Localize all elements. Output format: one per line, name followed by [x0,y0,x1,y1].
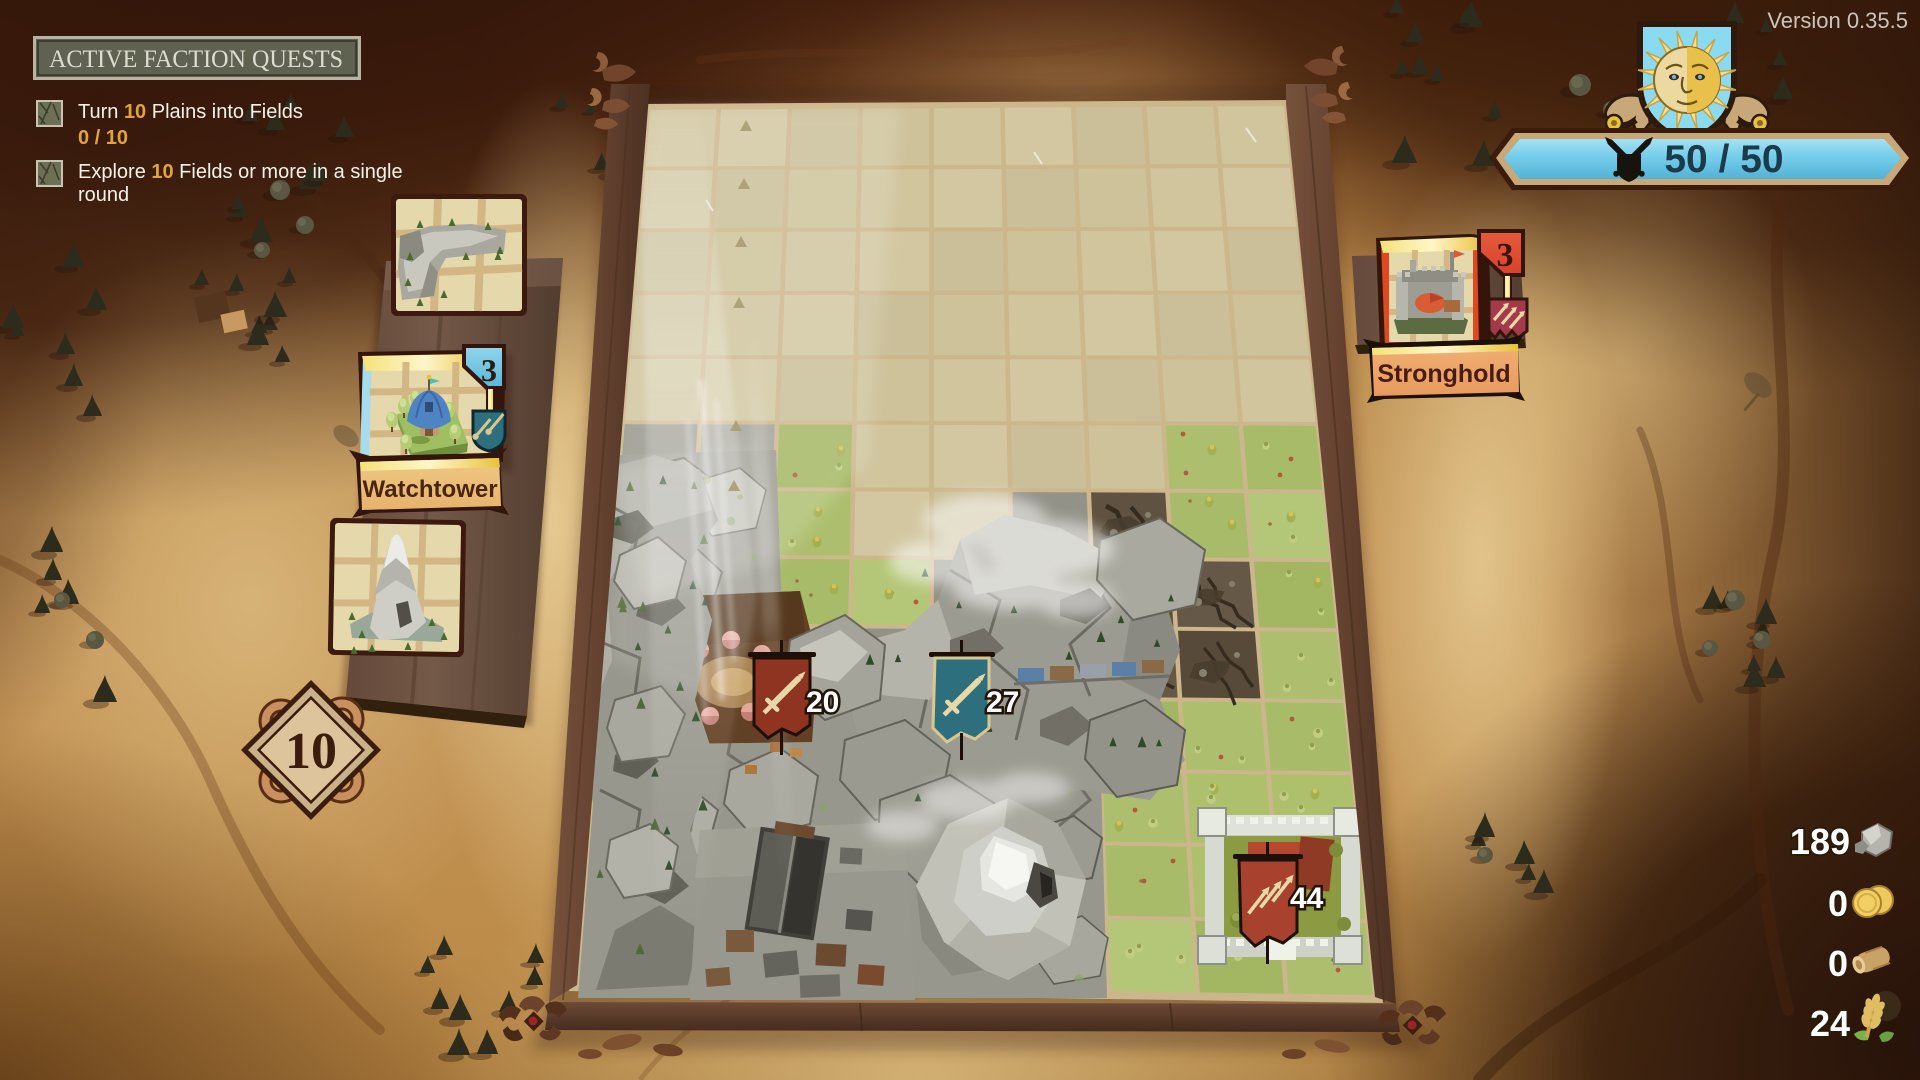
svg-text:0: 0 [1828,943,1848,984]
svg-text:20: 20 [806,686,839,719]
svg-text:0: 0 [1828,883,1848,924]
svg-text:Stronghold: Stronghold [1377,360,1510,388]
svg-text:round: round [78,184,129,206]
svg-text:3: 3 [1497,237,1514,274]
svg-text:10: 10 [285,723,337,780]
svg-text:44: 44 [1290,882,1324,915]
svg-text:Explore 10 Fields or more in a: Explore 10 Fields or more in a single [78,161,403,183]
svg-text:27: 27 [986,686,1019,719]
svg-text:24: 24 [1810,1003,1850,1044]
svg-text:Turn 10 Plains into Fields: Turn 10 Plains into Fields [78,101,303,123]
svg-text:0 / 10: 0 / 10 [78,127,128,149]
svg-text:Version 0.35.5: Version 0.35.5 [1767,8,1908,33]
svg-text:ACTIVE FACTION QUESTS: ACTIVE FACTION QUESTS [49,46,343,73]
svg-text:3: 3 [481,352,497,388]
svg-text:50 / 50: 50 / 50 [1664,138,1783,181]
svg-text:Watchtower: Watchtower [362,476,497,503]
svg-text:189: 189 [1790,821,1850,862]
